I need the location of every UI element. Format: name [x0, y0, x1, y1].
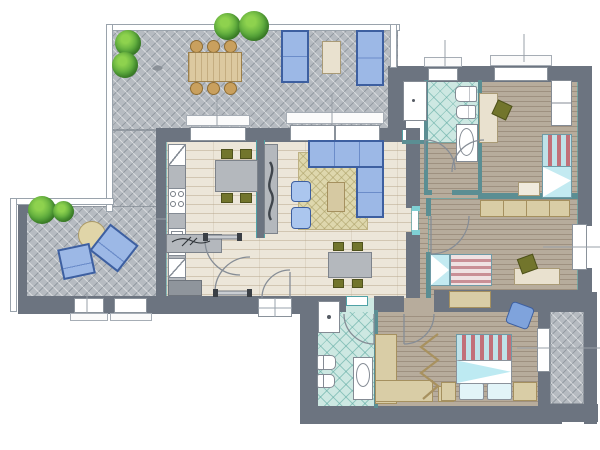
entrance-door-cross	[258, 298, 292, 317]
bedroom1-door-arc	[452, 140, 484, 172]
leader-lines	[87, 34, 600, 348]
floor-plan	[0, 0, 600, 450]
bathroom2-door	[344, 314, 374, 344]
accordion-door	[421, 334, 438, 399]
bird-ornament-icon	[152, 65, 163, 71]
tv-icon	[269, 162, 272, 220]
annotations-overlay	[0, 0, 600, 450]
entrance-door-arc	[262, 270, 290, 298]
bathroom1-door	[425, 140, 455, 170]
bedroom2-door	[431, 216, 469, 254]
